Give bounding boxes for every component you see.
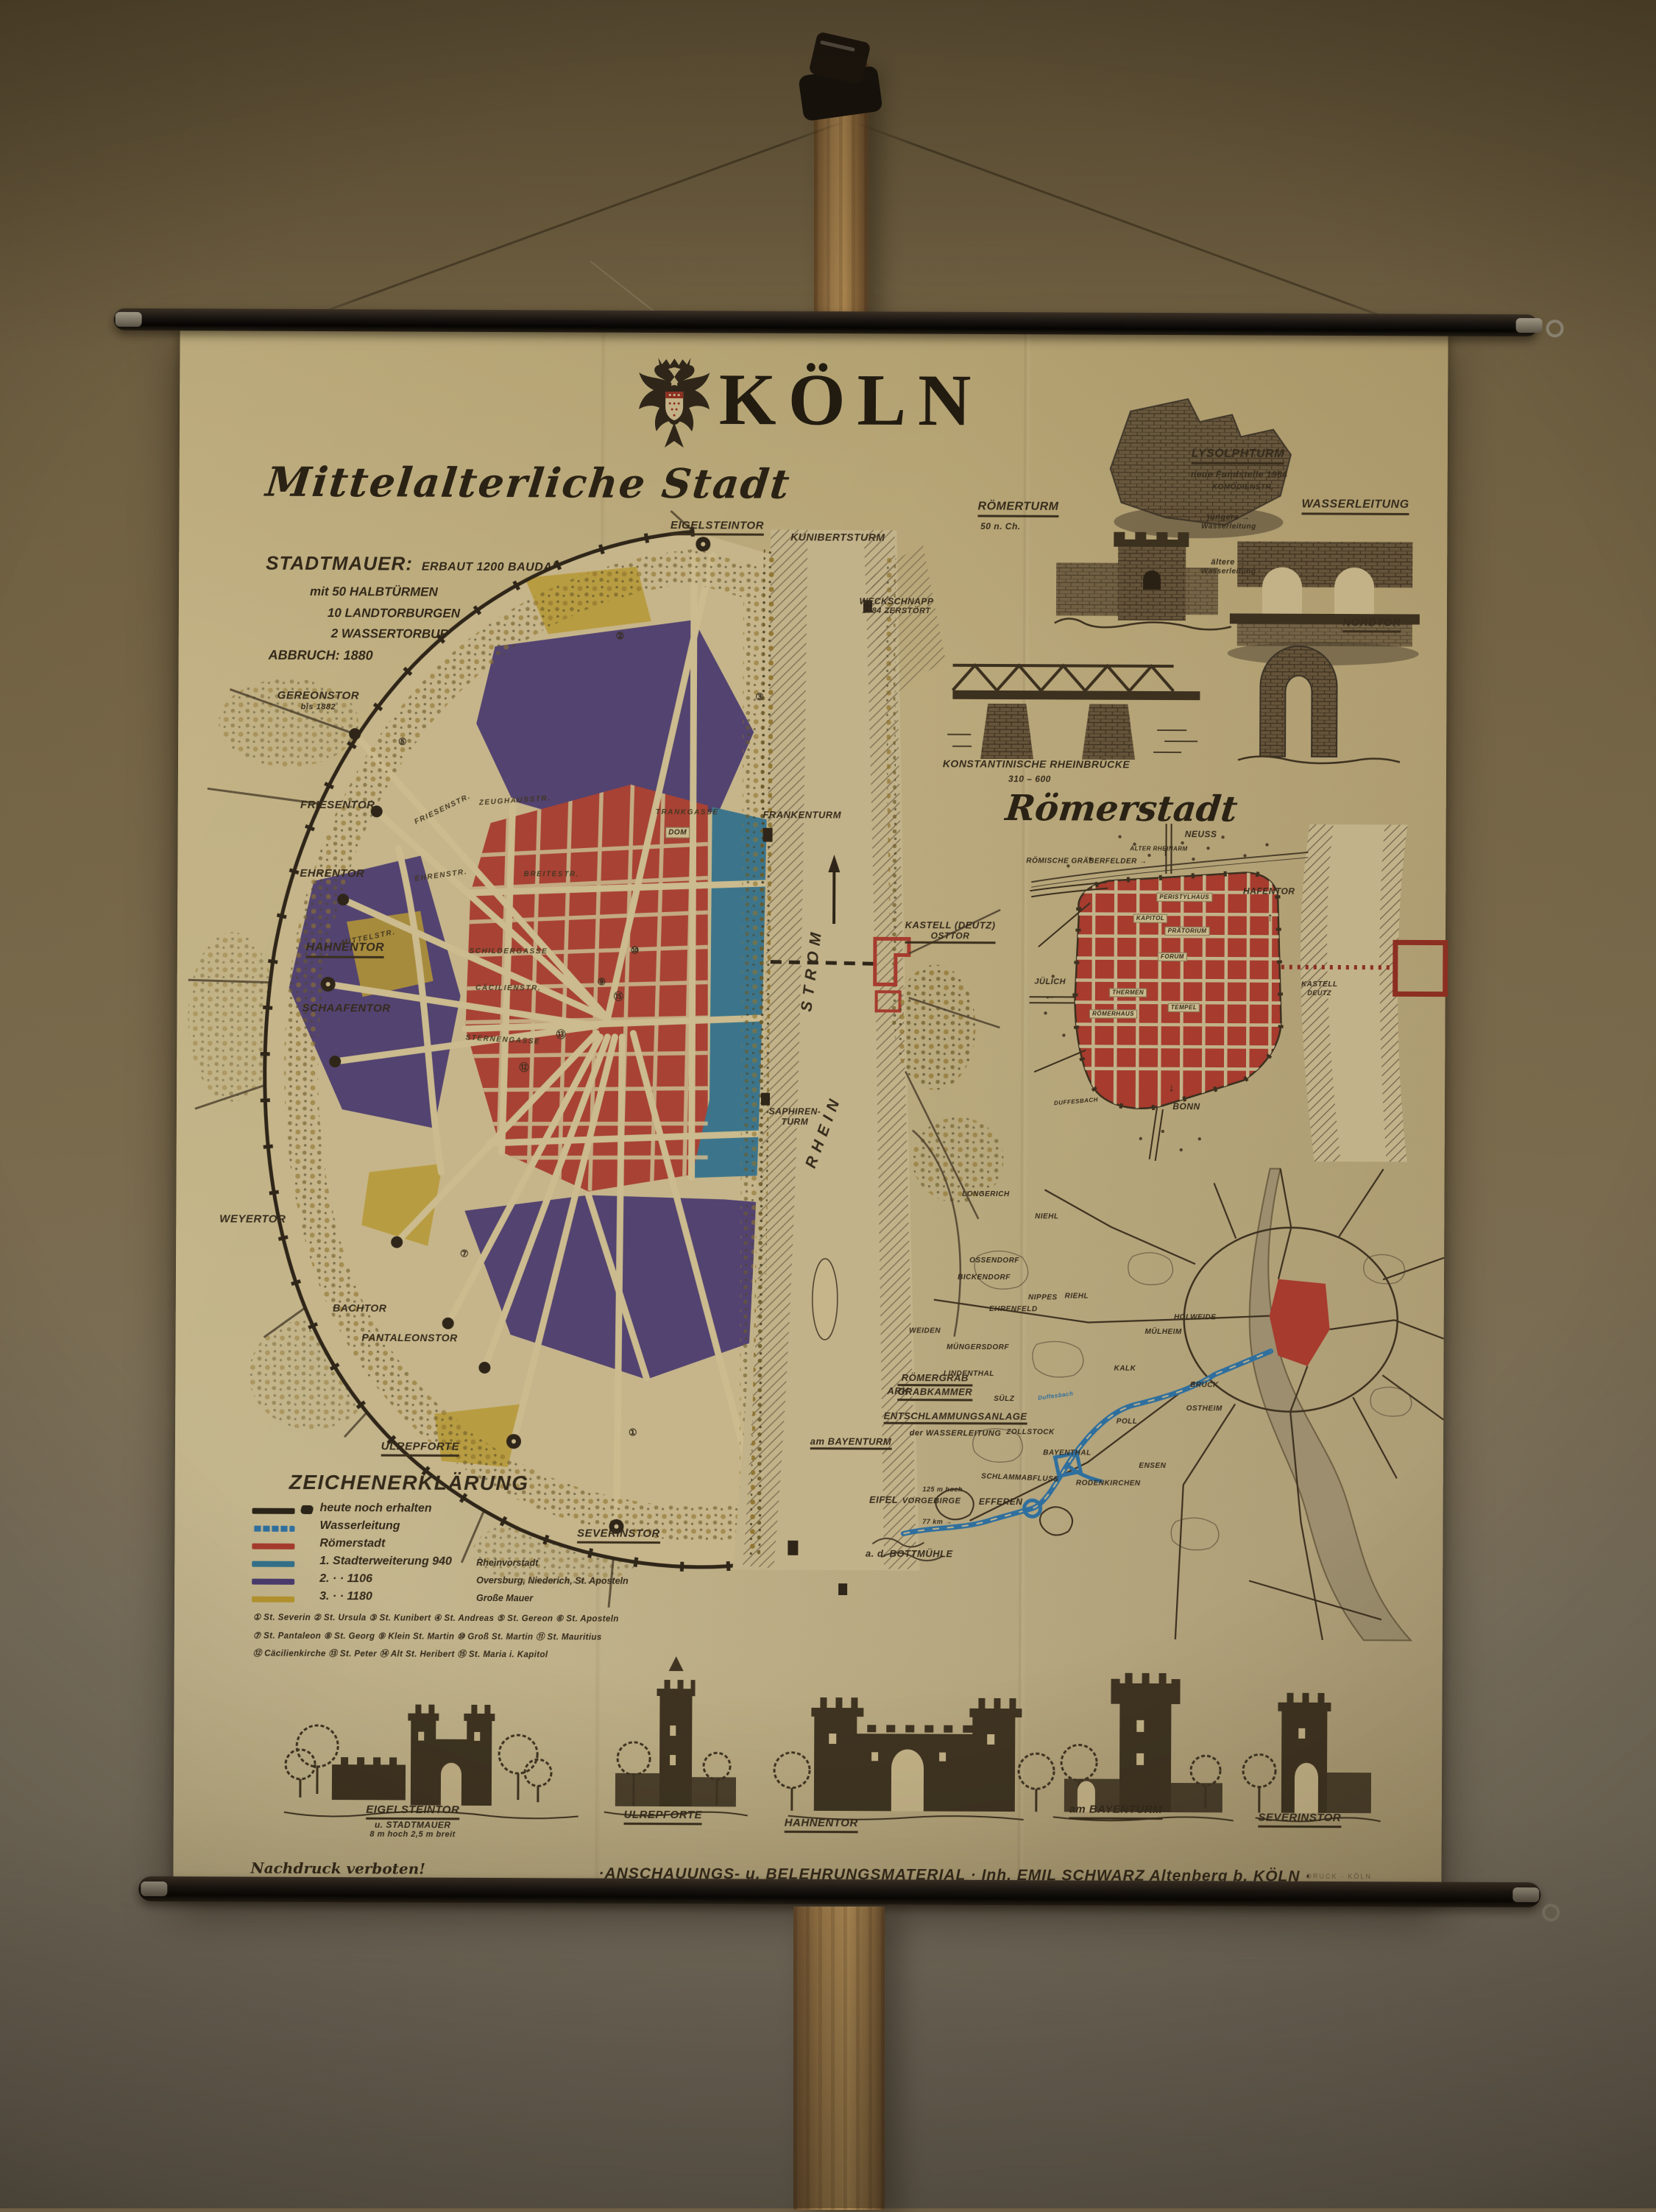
rod-hook-icon [1546, 319, 1564, 337]
rod-end-cap [141, 1881, 167, 1896]
hanging-cord-left [297, 120, 846, 322]
hanging-pole-bottom [793, 1907, 885, 2210]
map-label: SEVERINSTOR [1258, 1812, 1341, 1828]
legend-heading: ZEICHENERKLÄRUNG [289, 1471, 529, 1495]
legend-item: 3. · · 1180 Große Mauer [252, 1591, 752, 1610]
hanging-cord-right [850, 120, 1410, 328]
map-label: ULREPFORTE [624, 1809, 702, 1825]
wall-scratch [590, 261, 659, 316]
copyright-notice: Nachdruck verboten! [250, 1859, 425, 1878]
wall-chart: KÖLN Mittelalterliche Stadt Römerstadt S… [0, 0, 1656, 2212]
map-label: EIGELSTEINTORu. STADTMAUER8 m hoch 2,5 m… [366, 1803, 459, 1840]
preserved-mark-icon [300, 1505, 315, 1514]
legend-item: 2. · · 1106 Oversburg, Niederich, St. Ap… [252, 1574, 752, 1592]
church-key-row: ① St. Severin ② St. Ursula ③ St. Kuniber… [253, 1612, 619, 1624]
church-key-row: ⑫ Cäcilienkirche ⑬ St. Peter ⑭ Alt St. H… [253, 1647, 548, 1661]
poster-paper: KÖLN Mittelalterliche Stadt Römerstadt S… [173, 325, 1448, 1896]
map-label: HAHNENTOR [785, 1817, 858, 1833]
legend-item: Wasserleitung [252, 1521, 752, 1539]
rod-end-cap [1516, 318, 1543, 333]
hanging-rod-bottom [138, 1876, 1540, 1907]
map-label: am BAYENTURM [1069, 1803, 1162, 1820]
legend-item: 1. Stadterweiterung 940 Rheinvorstadt [252, 1556, 752, 1575]
legend: ZEICHENERKLÄRUNG heute noch erhalten Was… [252, 1471, 753, 1664]
rod-hook-icon [1542, 1904, 1560, 1921]
rod-end-cap [116, 312, 142, 327]
church-key-row: ⑦ St. Pantaleon ⑧ St. Georg ⑨ Klein St. … [253, 1630, 602, 1643]
printer-note: DRUCK · KÖLN [1306, 1873, 1372, 1880]
photo-scene: KÖLN Mittelalterliche Stadt Römerstadt S… [0, 0, 1656, 2208]
rod-end-cap [1512, 1887, 1539, 1902]
legend-item: heute noch erhalten [252, 1503, 753, 1522]
legend-item: Römerstadt [252, 1538, 752, 1557]
